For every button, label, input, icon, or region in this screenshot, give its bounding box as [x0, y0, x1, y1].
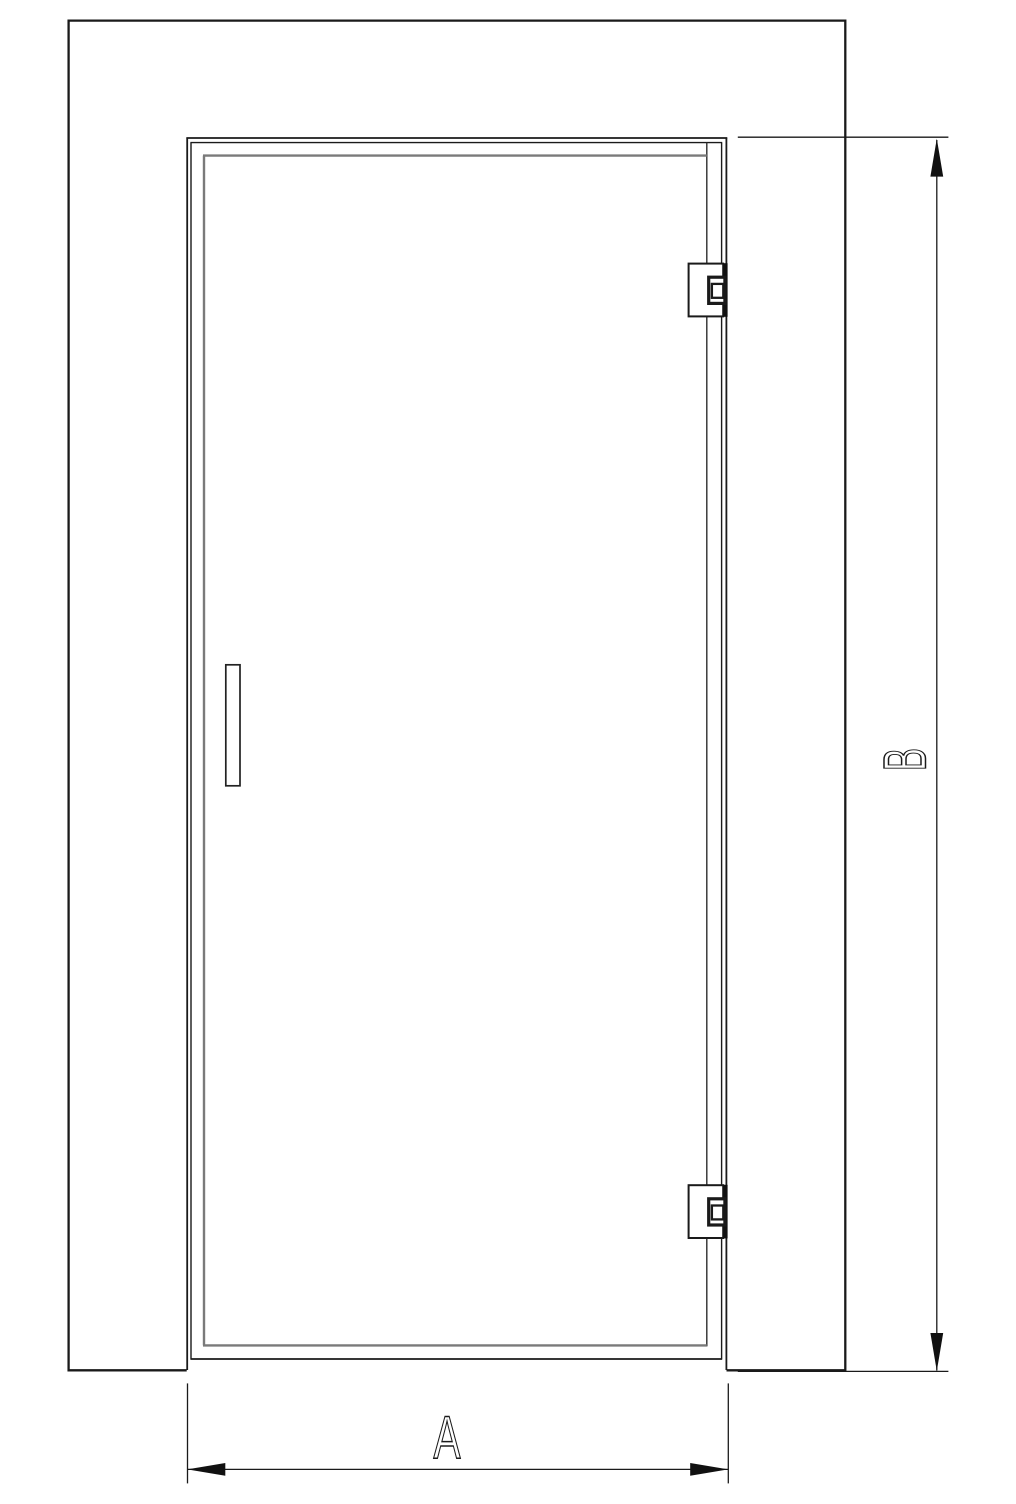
- dimension-b-arrow-up-icon: [930, 139, 943, 177]
- dimension-a-label: A: [434, 1404, 461, 1471]
- dimension-a: A: [187, 1383, 728, 1483]
- door-panel: [203, 156, 707, 1346]
- door-frame-outer: [186, 138, 727, 1371]
- door-handle: [226, 665, 240, 786]
- dimension-b-arrow-down-icon: [930, 1333, 943, 1371]
- hinge-top: [689, 263, 728, 317]
- wall: [69, 21, 846, 1371]
- door-frame-inner: [190, 143, 722, 1359]
- wall-outline: [69, 21, 846, 1371]
- drawing-canvas: B A: [0, 0, 1016, 1504]
- dimension-b-label: B: [872, 748, 939, 771]
- dimension-b: B: [738, 137, 949, 1371]
- hinge-bottom: [689, 1185, 728, 1239]
- cad-drawing-svg: B A: [0, 0, 1016, 1504]
- dimension-a-arrow-left-icon: [187, 1463, 225, 1476]
- dimension-a-arrow-right-icon: [690, 1463, 728, 1476]
